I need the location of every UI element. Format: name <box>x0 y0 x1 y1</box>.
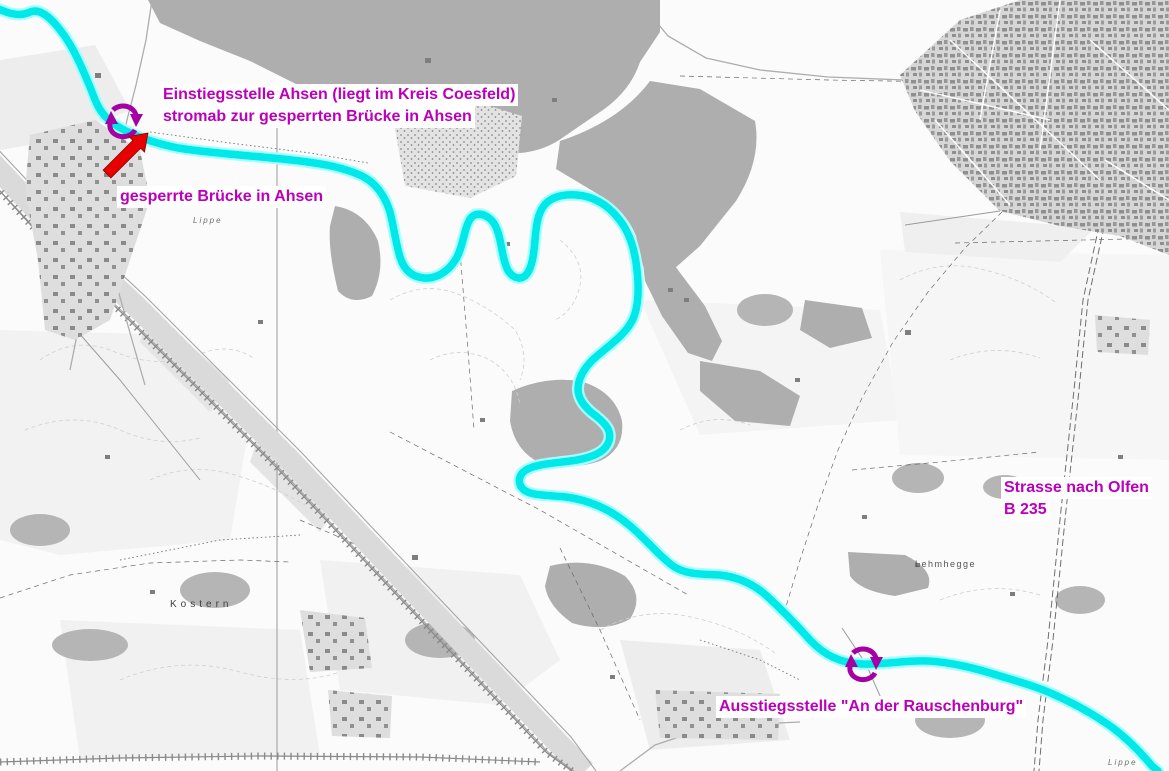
place-label-lippe-southeast: Lippe <box>1108 758 1138 767</box>
label-einstiegsstelle-line1: Einstiegsstelle Ahsen (liegt im Kreis Co… <box>160 84 518 106</box>
bridge-pointer-arrow-icon <box>100 128 150 180</box>
ausstieg-loop-arrows-icon <box>842 644 886 684</box>
label-strasse-line2: B 235 <box>1001 499 1050 521</box>
label-gesperrte-bruecke: gesperrte Brücke in Ahsen <box>117 186 326 208</box>
place-label-lehmhegge: Lehmhegge <box>915 559 976 569</box>
label-strasse-line1: Strasse nach Olfen <box>1001 477 1152 499</box>
label-einstiegsstelle-line2: stromab zur gesperrten Brücke in Ahsen <box>160 106 475 128</box>
place-label-lippe-west: Lippe <box>193 216 223 225</box>
label-strasse-nach-olfen: Strasse nach Olfen B 235 <box>1001 477 1152 521</box>
label-einstiegsstelle: Einstiegsstelle Ahsen (liegt im Kreis Co… <box>160 84 518 128</box>
place-label-kostern: Kostern <box>170 599 232 610</box>
label-ausstiegsstelle: Ausstiegsstelle "An der Rauschenburg" <box>716 696 1026 718</box>
map-canvas[interactable]: Einstiegsstelle Ahsen (liegt im Kreis Co… <box>0 0 1169 771</box>
